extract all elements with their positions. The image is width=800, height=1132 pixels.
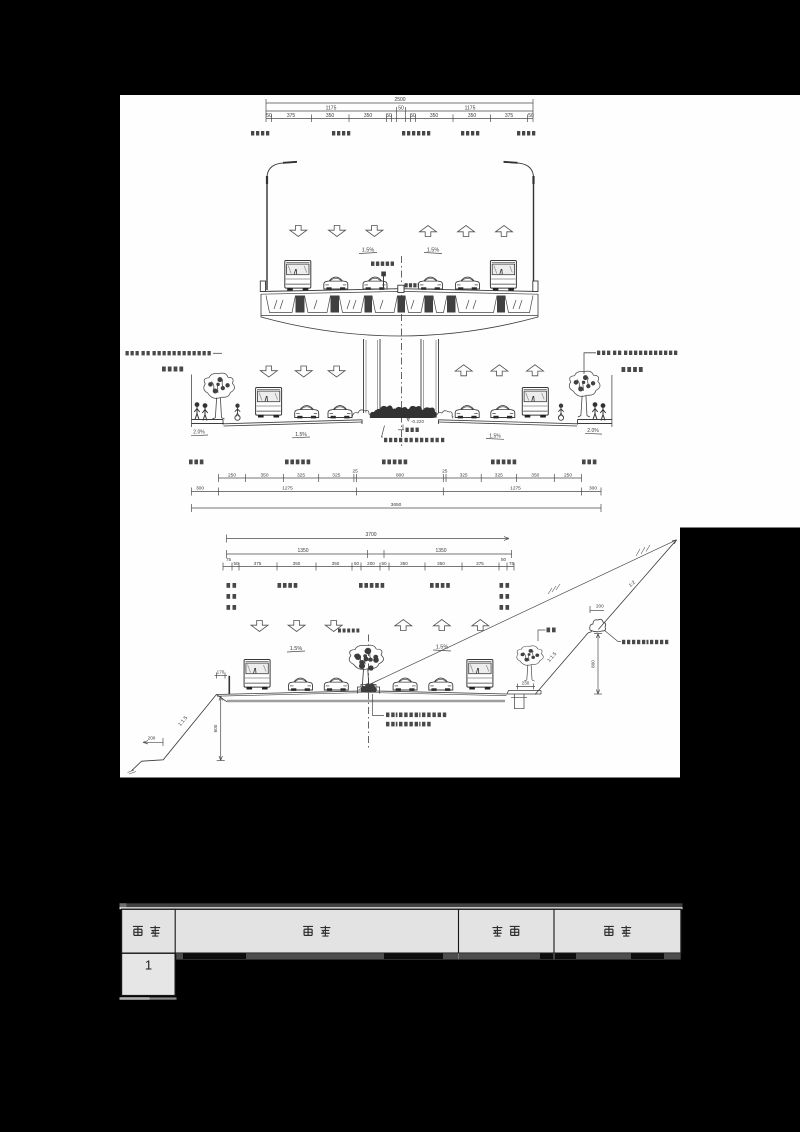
svg-text:75: 75 bbox=[226, 557, 232, 562]
svg-text:50: 50 bbox=[501, 557, 507, 562]
svg-text:250: 250 bbox=[564, 473, 572, 479]
svg-text:800: 800 bbox=[591, 660, 596, 668]
svg-text:325: 325 bbox=[460, 473, 468, 479]
svg-text:25: 25 bbox=[442, 469, 448, 475]
svg-text:325: 325 bbox=[332, 473, 340, 479]
svg-text:50: 50 bbox=[233, 561, 239, 566]
svg-text:170: 170 bbox=[217, 670, 225, 675]
svg-text:350: 350 bbox=[430, 113, 439, 119]
svg-text:230: 230 bbox=[522, 681, 530, 686]
svg-text:375: 375 bbox=[287, 113, 296, 119]
svg-text:1275: 1275 bbox=[510, 486, 521, 492]
svg-text:350: 350 bbox=[293, 561, 301, 566]
svg-text:50: 50 bbox=[398, 106, 404, 112]
svg-text:1350: 1350 bbox=[297, 548, 308, 554]
svg-text:1175: 1175 bbox=[465, 106, 476, 112]
svg-text:50: 50 bbox=[386, 113, 392, 119]
svg-text:200: 200 bbox=[148, 736, 156, 741]
svg-text:350: 350 bbox=[437, 561, 445, 566]
svg-text:350: 350 bbox=[332, 561, 340, 566]
svg-text:250: 250 bbox=[228, 473, 236, 479]
svg-text:50: 50 bbox=[528, 113, 534, 119]
svg-text:350: 350 bbox=[364, 113, 373, 119]
svg-text:375: 375 bbox=[476, 561, 484, 566]
svg-text:3650: 3650 bbox=[391, 502, 402, 508]
svg-text:1350: 1350 bbox=[435, 548, 446, 554]
svg-text:50: 50 bbox=[410, 113, 416, 119]
svg-text:-0.220: -0.220 bbox=[411, 419, 424, 424]
svg-text:350: 350 bbox=[400, 561, 408, 566]
svg-text:375: 375 bbox=[254, 561, 262, 566]
svg-text:3700: 3700 bbox=[365, 532, 376, 538]
svg-text:800: 800 bbox=[396, 473, 404, 479]
svg-text:1275: 1275 bbox=[282, 486, 293, 492]
svg-text:2.0%: 2.0% bbox=[587, 428, 599, 434]
svg-text:325: 325 bbox=[297, 473, 305, 479]
svg-text:375: 375 bbox=[505, 113, 514, 119]
svg-text:350: 350 bbox=[531, 473, 539, 479]
svg-text:325: 325 bbox=[495, 473, 503, 479]
svg-text:300: 300 bbox=[196, 486, 204, 492]
svg-text:200: 200 bbox=[367, 561, 375, 566]
svg-text:600: 600 bbox=[213, 724, 218, 732]
svg-text:50: 50 bbox=[266, 113, 272, 119]
svg-text:200: 200 bbox=[596, 604, 604, 609]
svg-text:50: 50 bbox=[354, 561, 360, 566]
svg-text:1175: 1175 bbox=[326, 106, 337, 112]
svg-text:2.0%: 2.0% bbox=[193, 430, 205, 436]
svg-text:350: 350 bbox=[326, 113, 335, 119]
svg-text:2500: 2500 bbox=[394, 97, 405, 103]
svg-text:50: 50 bbox=[381, 561, 387, 566]
svg-text:1: 1 bbox=[145, 958, 152, 973]
svg-text:1.5%: 1.5% bbox=[436, 645, 449, 651]
svg-text:350: 350 bbox=[260, 473, 268, 479]
svg-text:75: 75 bbox=[509, 561, 515, 566]
svg-text:25: 25 bbox=[353, 469, 359, 475]
svg-text:350: 350 bbox=[468, 113, 477, 119]
svg-text:300: 300 bbox=[589, 486, 597, 492]
